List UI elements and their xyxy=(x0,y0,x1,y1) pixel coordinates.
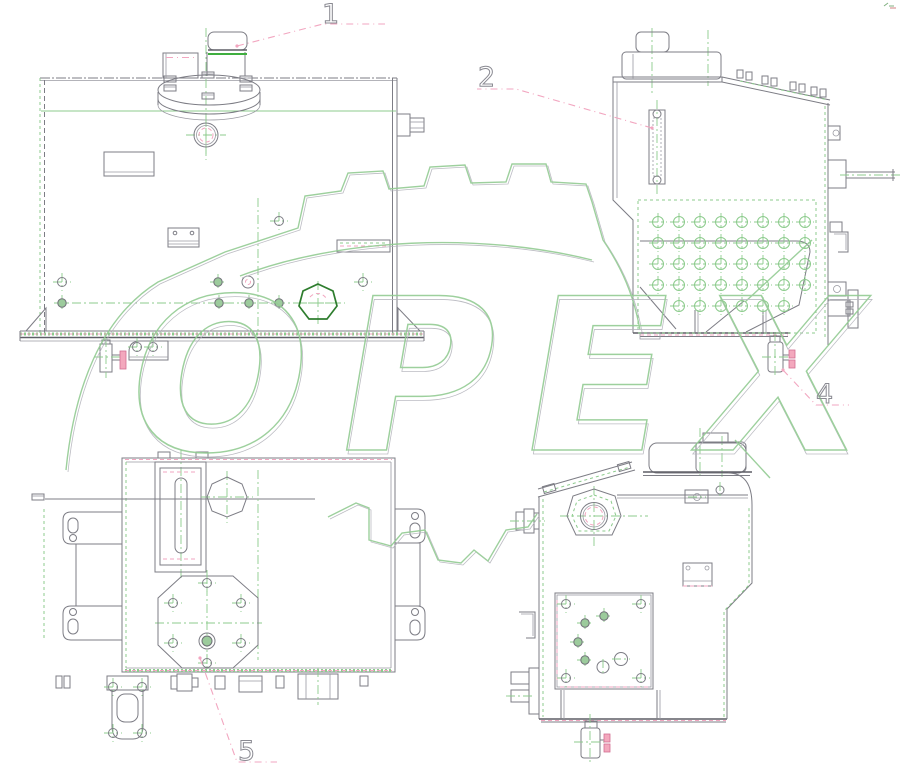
junction-plate xyxy=(683,563,712,586)
left-brackets xyxy=(44,509,122,640)
bottom-fittings xyxy=(56,668,368,742)
top-rail xyxy=(722,70,830,105)
sight-gauge xyxy=(649,100,665,194)
callout-1: 1 xyxy=(235,0,385,48)
callout-4-label: 4 xyxy=(816,379,833,410)
tank-drawing-page: OPEX OPEX 1 2 4 5 xyxy=(0,0,900,773)
breather-canister xyxy=(163,53,198,78)
callout-1-label: 1 xyxy=(322,0,339,30)
callout-2: 2 xyxy=(477,62,654,130)
pipe-bracket xyxy=(168,228,199,247)
return-port xyxy=(397,114,424,136)
callout-5: 5 xyxy=(198,656,277,767)
bolt-plate xyxy=(555,593,653,689)
strainer-plate xyxy=(337,240,390,252)
name-plate xyxy=(104,152,154,176)
watermark-text: OPEX xyxy=(108,254,900,500)
opex-watermark: OPEX OPEX xyxy=(66,164,900,565)
filler-cap-side xyxy=(613,28,722,96)
right-brackets xyxy=(395,509,425,640)
callout-2-label: 2 xyxy=(478,62,495,93)
tank-drawing: OPEX OPEX 1 2 4 5 xyxy=(0,0,900,773)
corner-mark xyxy=(884,3,896,8)
front-drain-valve xyxy=(94,338,126,378)
callout-5-label: 5 xyxy=(238,736,255,767)
breather-cap xyxy=(207,32,247,76)
cleanout-flange xyxy=(155,570,262,672)
